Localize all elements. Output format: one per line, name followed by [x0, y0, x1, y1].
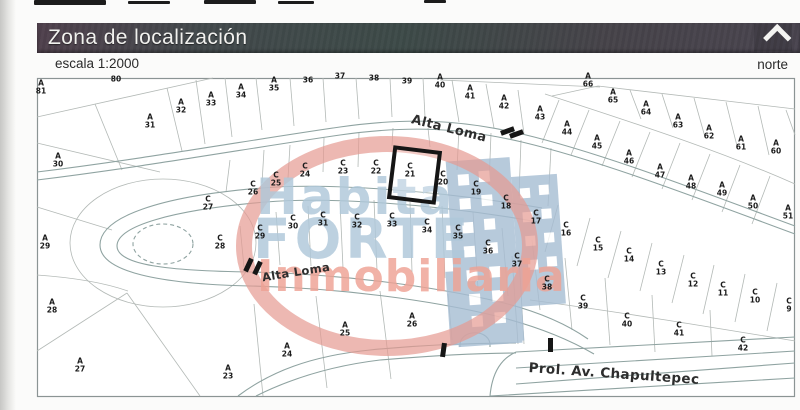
lot-label: A27 — [75, 357, 85, 374]
lot-label: C14 — [624, 247, 634, 263]
lot-label: A24 — [282, 342, 292, 359]
lot-label: A34 — [236, 83, 246, 100]
lot-label: A50 — [748, 194, 758, 211]
lot-label: C13 — [656, 260, 666, 277]
lot-label: C20 — [438, 170, 448, 187]
lot-label: A29 — [40, 234, 50, 251]
lot-label: C17 — [531, 209, 541, 226]
lot-label: A61 — [736, 135, 746, 152]
lot-label: A60 — [771, 139, 781, 156]
lot-label: A41 — [465, 84, 475, 101]
lot-label: C33 — [387, 212, 397, 229]
lot-label: A42 — [499, 94, 509, 111]
lot-label: A31 — [145, 113, 155, 130]
scanned-map-page: { "header": { "title": "Zona de localiza… — [0, 0, 800, 410]
lot-label: 39 — [402, 78, 412, 86]
lot-label: C34 — [422, 218, 432, 235]
lot-label: 36 — [303, 77, 313, 85]
lot-label: C37 — [512, 252, 522, 268]
lot-label: 38 — [369, 75, 379, 83]
lot-label: A64 — [641, 100, 651, 117]
lot-label: A25 — [340, 321, 350, 338]
lot-label: C30 — [288, 214, 298, 231]
lot-label: C26 — [248, 180, 258, 197]
lot-label: A81 — [36, 79, 46, 96]
lot-label: C36 — [483, 239, 493, 256]
lot-label: A43 — [535, 105, 545, 122]
lot-label: A33 — [206, 91, 216, 108]
lot-label: C18 — [501, 194, 511, 211]
lot-label: 80 — [111, 76, 121, 84]
lot-label: C24 — [300, 162, 310, 179]
lot-label: C28 — [215, 234, 225, 251]
lot-label: 37 — [335, 73, 345, 81]
lot-label: A28 — [47, 298, 57, 315]
lot-label: A23 — [223, 364, 233, 381]
road-marker — [548, 338, 553, 352]
lot-label: C29 — [255, 224, 265, 241]
lot-label: C35 — [453, 224, 463, 241]
lot-label: C19 — [471, 180, 481, 197]
lot-label: A26 — [407, 312, 417, 329]
lot-label: C23 — [338, 159, 348, 176]
lot-label: C32 — [352, 213, 362, 230]
lot-label: A30 — [53, 152, 63, 169]
lot-label: C16 — [561, 221, 571, 238]
lot-label: C42 — [738, 336, 748, 353]
lot-label: C41 — [674, 321, 684, 338]
lot-label: A45 — [592, 134, 602, 151]
lot-label: A35 — [269, 76, 279, 93]
lot-label: C40 — [622, 312, 632, 329]
lot-label: C15 — [593, 236, 603, 253]
lot-label: C12 — [688, 272, 698, 289]
lot-label: C39 — [578, 294, 588, 311]
lot-label: A46 — [624, 149, 634, 166]
lot-label: A62 — [704, 124, 714, 141]
lot-label: A49 — [717, 181, 727, 198]
lot-label: A66 — [583, 72, 593, 89]
lot-label: A44 — [562, 120, 572, 137]
lot-label: C9 — [786, 297, 792, 314]
lot-label: A32 — [176, 98, 186, 115]
lot-label: A63 — [673, 113, 683, 130]
lot-label: C31 — [318, 211, 328, 228]
lot-label: C21 — [405, 162, 415, 179]
lot-label: C11 — [718, 281, 728, 298]
lot-label: C22 — [371, 159, 381, 176]
lot-label: A47 — [655, 163, 665, 180]
lot-label: A65 — [608, 88, 618, 105]
lot-label: C38 — [542, 275, 552, 292]
lot-label: C25 — [271, 171, 281, 188]
lot-label: A48 — [686, 174, 696, 191]
lot-label: C10 — [750, 288, 760, 305]
lot-label: A51 — [783, 204, 793, 221]
lot-label: A40 — [435, 73, 445, 90]
lot-label: C27 — [203, 195, 213, 212]
